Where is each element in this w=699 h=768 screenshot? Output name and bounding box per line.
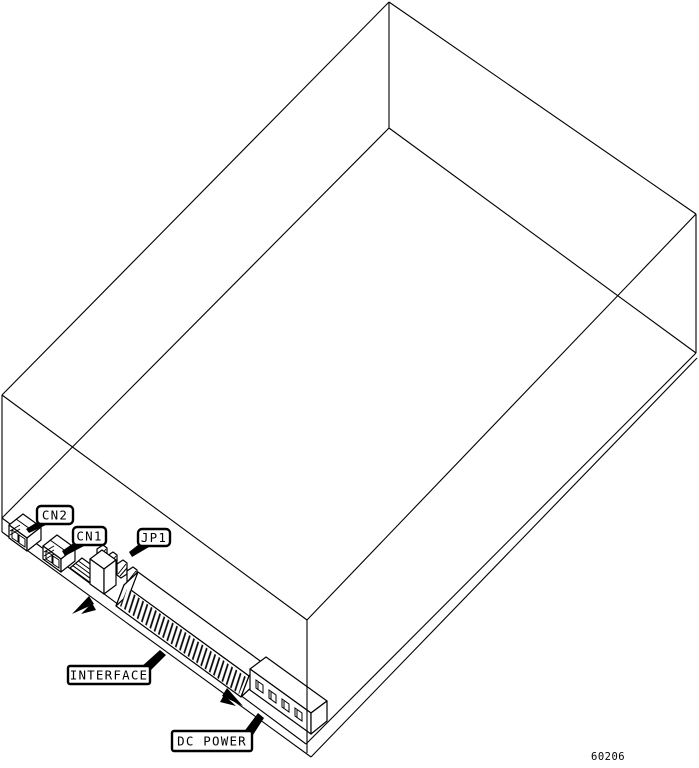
- figure-canvas: CN2 CN1 JP1 INTERFACE DC POWER 60206: [0, 0, 699, 768]
- background: [0, 0, 699, 768]
- isometric-drive-diagram: CN2 CN1 JP1 INTERFACE DC POWER 60206: [0, 0, 699, 768]
- figure-number: 60206: [591, 751, 625, 763]
- callout-cn2-label: CN2: [42, 508, 68, 523]
- callout-cn1-label: CN1: [76, 529, 102, 544]
- callout-interface-label: INTERFACE: [70, 668, 149, 683]
- callout-jp1-label: JP1: [141, 530, 167, 545]
- callout-dc-power-label: DC POWER: [177, 734, 247, 749]
